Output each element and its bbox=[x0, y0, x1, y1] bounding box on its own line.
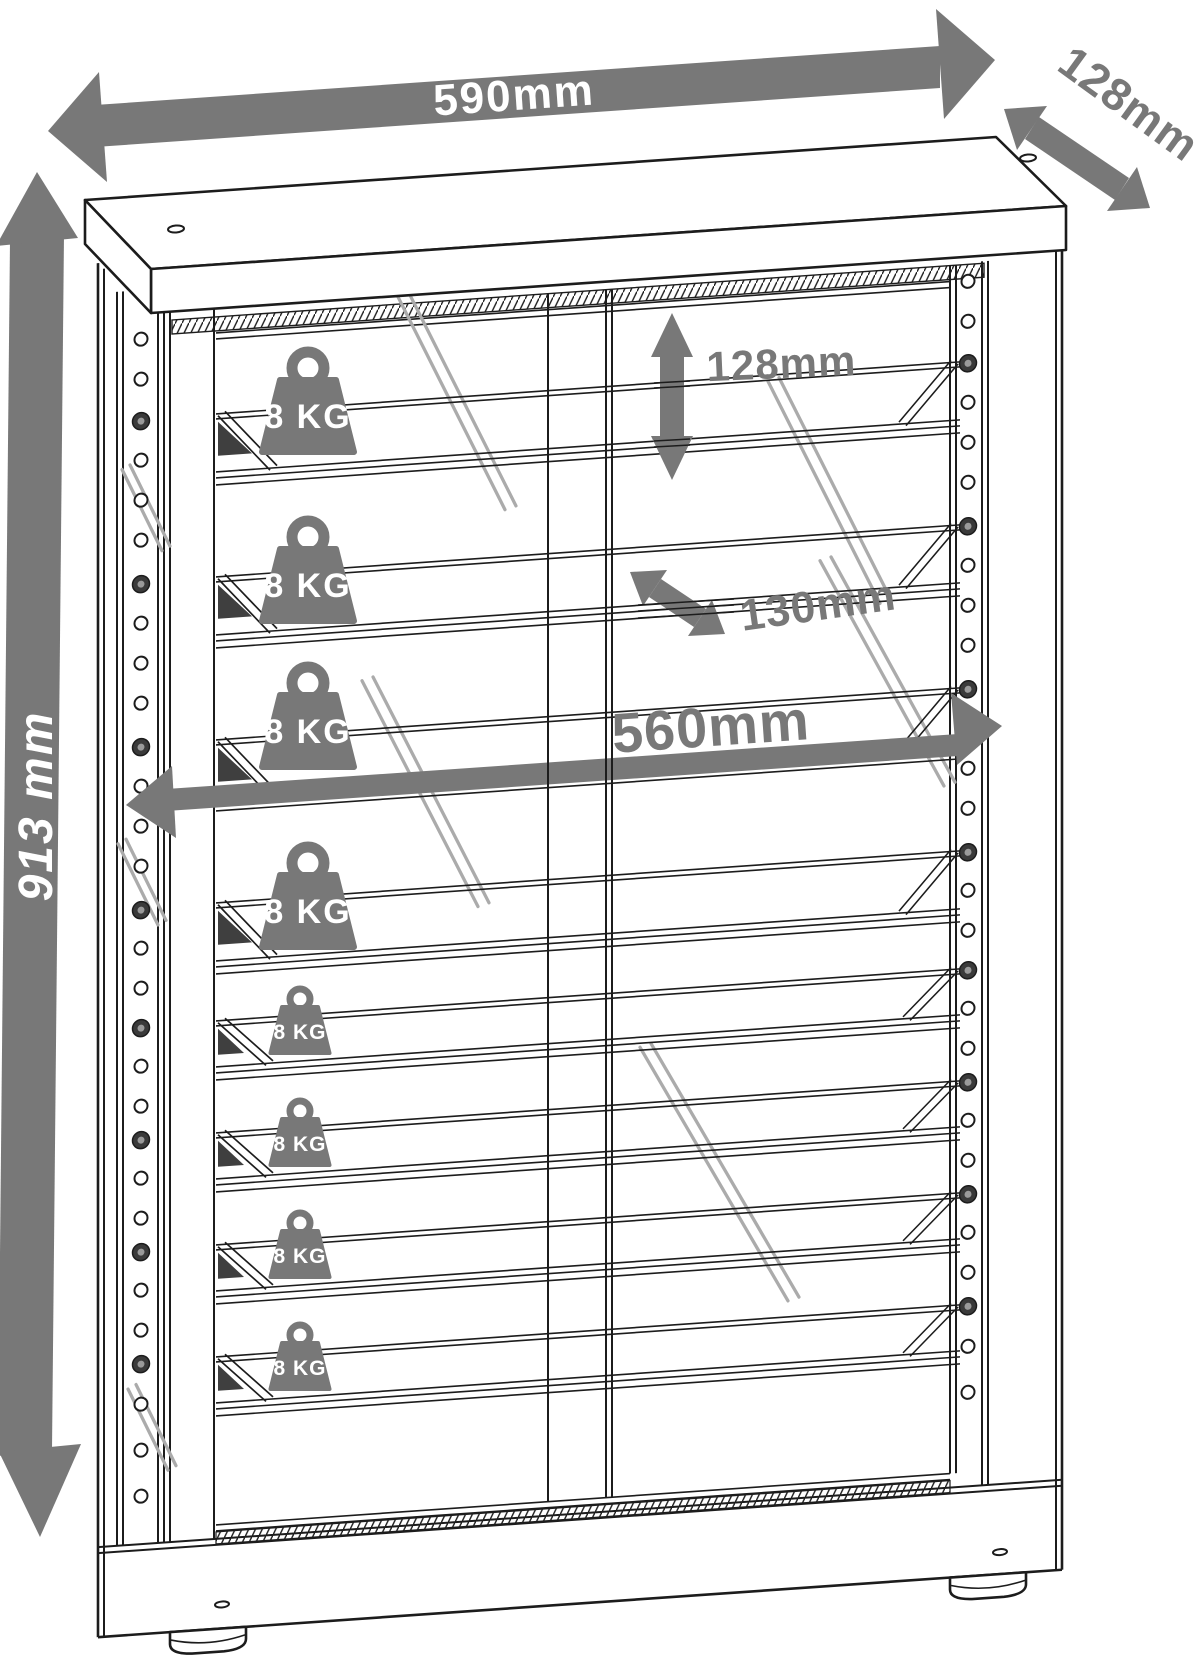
cabinet-technical-drawing: 590mm 913 mm 128mm 128mm 130mm bbox=[0, 0, 1200, 1668]
weight-label: 8 KG bbox=[273, 1357, 326, 1380]
weight-label: 8 KG bbox=[264, 893, 351, 931]
overall-width-label: 590mm bbox=[432, 65, 597, 125]
compartment-height-label: 128mm bbox=[706, 337, 858, 390]
weight-label: 8 KG bbox=[273, 1021, 326, 1044]
weight-label: 8 KG bbox=[264, 567, 351, 605]
plinth-screw bbox=[993, 1549, 1007, 1556]
weight-label: 8 KG bbox=[273, 1133, 326, 1156]
weight-label: 8 KG bbox=[273, 1245, 326, 1268]
overall-height-label: 913 mm bbox=[10, 711, 63, 902]
cabinet-body bbox=[98, 194, 1062, 1660]
top-screw-left bbox=[168, 225, 185, 233]
overall-height-arrow: 913 mm bbox=[0, 172, 81, 1537]
top-screw-right bbox=[1020, 154, 1037, 162]
weight-label: 8 KG bbox=[264, 713, 351, 751]
plinth-screw bbox=[215, 1601, 229, 1608]
weight-label: 8 KG bbox=[264, 398, 351, 436]
diagram-page: 590mm 913 mm 128mm 128mm 130mm bbox=[0, 0, 1200, 1668]
